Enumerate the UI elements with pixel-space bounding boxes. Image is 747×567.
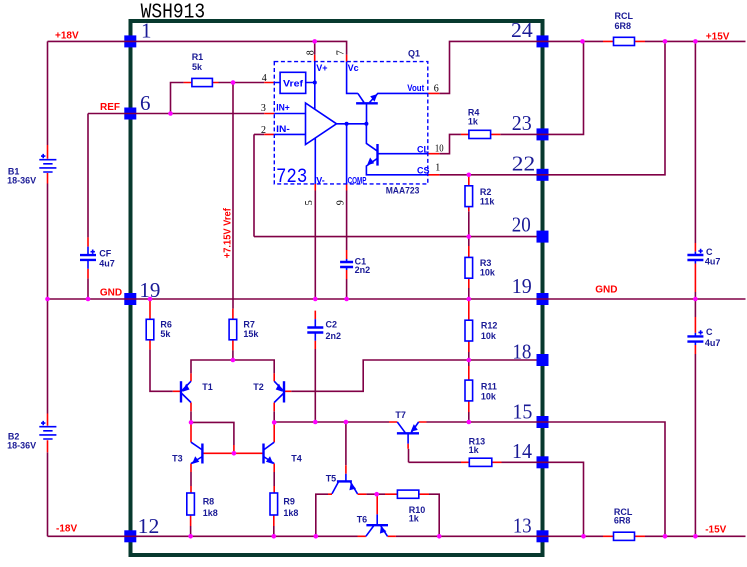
svg-text:7: 7	[336, 50, 347, 55]
svg-text:T6: T6	[357, 514, 368, 524]
svg-text:11k: 11k	[480, 196, 496, 206]
svg-text:T2: T2	[253, 382, 264, 392]
svg-text:T3: T3	[172, 454, 183, 464]
svg-text:R3: R3	[480, 258, 492, 268]
svg-text:23: 23	[512, 111, 532, 135]
svg-text:-15V: -15V	[705, 525, 726, 536]
svg-text:10: 10	[435, 144, 444, 155]
svg-text:RCL: RCL	[615, 11, 634, 21]
svg-text:723: 723	[276, 166, 307, 189]
svg-text:C: C	[706, 327, 713, 337]
svg-text:CS: CS	[417, 166, 430, 176]
svg-text:T4: T4	[291, 454, 302, 464]
svg-text:12: 12	[138, 514, 160, 538]
svg-text:4u7: 4u7	[705, 338, 721, 348]
svg-text:R1: R1	[192, 52, 204, 62]
svg-text:15k: 15k	[243, 329, 259, 339]
svg-text:15: 15	[512, 400, 532, 424]
svg-text:6: 6	[140, 91, 151, 115]
svg-text:CL: CL	[417, 145, 429, 155]
svg-text:C2: C2	[326, 320, 338, 330]
svg-text:6R8: 6R8	[614, 516, 631, 526]
svg-text:GND: GND	[595, 285, 617, 296]
svg-text:IN-: IN-	[276, 124, 290, 134]
svg-text:10k: 10k	[481, 392, 497, 402]
svg-text:+15V: +15V	[706, 32, 730, 43]
svg-text:C: C	[706, 247, 713, 257]
svg-text:1k8: 1k8	[203, 508, 218, 518]
svg-text:1: 1	[435, 162, 440, 173]
svg-text:19: 19	[139, 278, 160, 302]
svg-text:REF: REF	[100, 102, 120, 113]
svg-text:2n2: 2n2	[355, 265, 371, 275]
svg-text:T1: T1	[202, 382, 213, 392]
svg-text:18: 18	[512, 340, 531, 364]
svg-text:5k: 5k	[160, 329, 171, 339]
svg-text:6R8: 6R8	[615, 21, 632, 31]
svg-text:+7.15V Vref: +7.15V Vref	[223, 208, 234, 259]
svg-text:10k: 10k	[481, 331, 497, 341]
svg-text:8: 8	[306, 50, 317, 55]
svg-text:9: 9	[336, 200, 347, 205]
svg-text:Q1: Q1	[408, 49, 420, 59]
svg-text:4: 4	[262, 73, 267, 84]
svg-text:2: 2	[261, 125, 266, 136]
svg-text:V-: V-	[316, 175, 325, 185]
svg-text:10k: 10k	[480, 268, 496, 278]
svg-text:1k: 1k	[468, 117, 479, 127]
svg-text:Vout: Vout	[407, 83, 424, 93]
svg-text:CF: CF	[99, 248, 111, 258]
svg-text:+18V: +18V	[55, 31, 79, 42]
svg-text:4u7: 4u7	[705, 256, 721, 266]
svg-text:R11: R11	[481, 381, 497, 391]
svg-text:6: 6	[434, 84, 439, 95]
svg-text:5: 5	[304, 200, 315, 205]
svg-text:1k8: 1k8	[283, 508, 298, 518]
svg-text:2n2: 2n2	[326, 331, 342, 341]
svg-text:T5: T5	[326, 473, 337, 483]
svg-text:IN+: IN+	[276, 103, 290, 113]
svg-text:1: 1	[141, 19, 152, 43]
svg-text:MAA723: MAA723	[386, 186, 420, 196]
svg-text:-18V: -18V	[56, 524, 77, 535]
svg-text:Vc: Vc	[348, 63, 359, 73]
svg-text:Vref: Vref	[283, 79, 304, 89]
svg-text:R2: R2	[480, 187, 492, 197]
svg-text:COMP: COMP	[348, 175, 367, 185]
svg-text:1k: 1k	[469, 445, 480, 455]
svg-text:T7: T7	[395, 410, 406, 420]
svg-text:13: 13	[513, 513, 532, 537]
svg-text:18-36V: 18-36V	[7, 440, 36, 450]
svg-text:GND: GND	[100, 288, 122, 299]
svg-text:20: 20	[512, 212, 531, 236]
svg-text:3: 3	[261, 103, 266, 114]
svg-text:24: 24	[511, 18, 533, 42]
svg-text:V+: V+	[316, 63, 327, 73]
svg-text:R9: R9	[283, 497, 295, 507]
svg-text:18-36V: 18-36V	[7, 176, 36, 186]
svg-text:14: 14	[512, 439, 532, 463]
svg-text:5k: 5k	[192, 62, 203, 72]
svg-text:R8: R8	[203, 497, 215, 507]
svg-text:1k: 1k	[409, 513, 420, 523]
svg-text:R12: R12	[481, 321, 498, 331]
svg-text:22: 22	[512, 151, 536, 175]
svg-text:4u7: 4u7	[99, 258, 115, 268]
svg-text:19: 19	[512, 274, 532, 298]
